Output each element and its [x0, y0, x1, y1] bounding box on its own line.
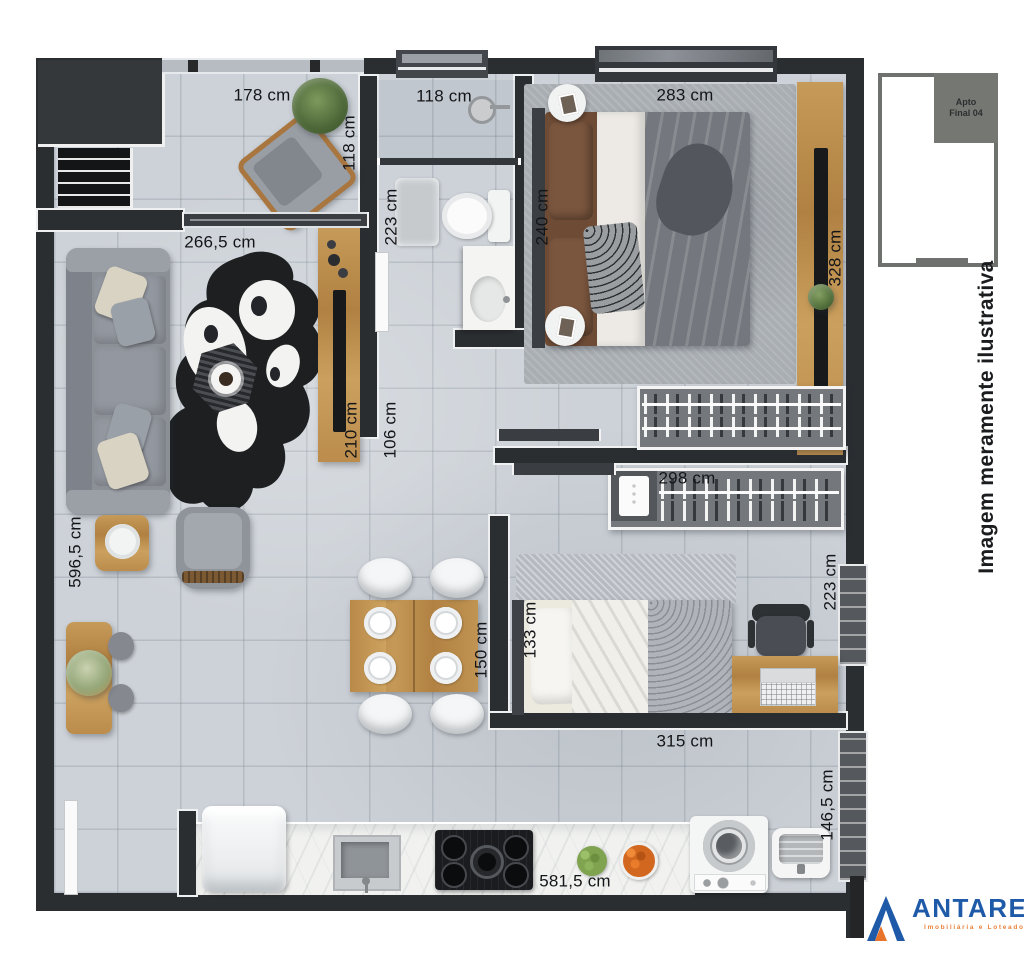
dim-bedroom1-depth: 240 cm	[534, 189, 551, 246]
dining-table	[350, 600, 478, 692]
wall-bottom	[36, 893, 864, 911]
shoe-rack	[58, 148, 133, 208]
faucet-stem	[365, 883, 368, 893]
wall-left	[36, 58, 54, 911]
entry-door	[64, 800, 78, 895]
cooktop	[435, 830, 533, 890]
floor-plan: 178 cm 118 cm 118 cm 223 cm 266,5 cm 283…	[0, 0, 1024, 960]
door-rail	[190, 219, 361, 221]
dim-bedroom1-side: 328 cm	[827, 230, 844, 287]
faucet-icon	[797, 864, 805, 874]
nightstand	[545, 306, 585, 346]
decor-object	[338, 268, 348, 278]
pillow-houndstooth	[583, 221, 646, 314]
dim-balcony-width: 178 cm	[234, 87, 291, 104]
brand-tagline: Imobiliária e Loteadora	[912, 924, 1024, 931]
tray	[105, 524, 140, 559]
chair-armrest	[748, 620, 755, 648]
toilet	[442, 190, 512, 242]
window-sill	[398, 67, 486, 70]
bathroom-window	[396, 50, 488, 78]
sofa	[66, 248, 170, 514]
brand-name: ANTARES	[912, 895, 1024, 921]
wall-right-upper	[846, 58, 864, 564]
office-chair	[748, 604, 814, 660]
armchair-cushion	[251, 135, 324, 208]
knit-blanket	[648, 600, 732, 713]
dim-bath-width: 118 cm	[416, 88, 472, 105]
shower-head-icon	[468, 96, 496, 124]
wall-bedroom2-left	[490, 516, 508, 728]
refrigerator	[202, 806, 286, 892]
shower-glass	[377, 158, 521, 165]
window-mullion	[188, 60, 198, 72]
wall-corner-bar	[850, 876, 864, 938]
side-table	[95, 515, 149, 571]
toilet-bowl	[442, 193, 492, 239]
coffee-beans	[219, 372, 233, 386]
wall-kitchen-stub	[179, 811, 196, 895]
bedroom1-wardrobe	[637, 386, 846, 450]
stool	[108, 684, 134, 712]
photo-frame	[558, 92, 579, 116]
shirt	[619, 476, 649, 516]
wall-bedroom2-bottom	[490, 713, 846, 728]
photo-frame	[556, 316, 576, 340]
dim-dining: 150 cm	[473, 622, 490, 679]
bedroom2-sliding-door	[512, 463, 616, 475]
keyplan-unit-line1: Apto	[956, 97, 977, 108]
keyplan-unit-line2: Final 04	[949, 108, 983, 119]
nightstand	[548, 84, 586, 122]
dim-bed2-bed: 133 cm	[522, 602, 539, 659]
dining-chair	[430, 558, 484, 598]
window-mullion	[310, 60, 320, 72]
console-plant	[66, 650, 112, 696]
dim-living-depth: 596,5 cm	[67, 516, 84, 588]
folded-shirt-icon	[611, 471, 657, 521]
wall-bath-bottom	[455, 330, 532, 347]
brand-logo: ANTARES Imobiliária e Loteadora	[866, 895, 1024, 941]
entry-hall-block	[38, 60, 165, 147]
dining-chair	[430, 694, 484, 734]
sofa-armrest	[66, 490, 170, 514]
kitchen-sink	[333, 835, 401, 891]
sink-basin	[341, 842, 389, 878]
dim-bed2-width: 315 cm	[657, 733, 714, 750]
window-blind	[402, 54, 482, 63]
dim-balcony-door: 266,5 cm	[184, 234, 256, 251]
burner-icon	[441, 862, 467, 888]
tub-basin	[779, 834, 823, 864]
antares-triangle-icon	[866, 895, 906, 941]
single-bed	[524, 600, 732, 713]
keyplan-inset: Apto Final 04	[878, 73, 998, 267]
sink-basin	[470, 276, 506, 322]
dim-balcony-depth: 118 cm	[341, 115, 358, 171]
wall-right-mid	[846, 662, 864, 731]
chair-seat	[756, 616, 806, 656]
fruit-bowl-orange	[620, 842, 658, 880]
dim-tv-panel: 210 cm	[343, 402, 360, 459]
bath-mat	[395, 178, 439, 246]
laptop-screen	[760, 668, 816, 683]
decor-object	[328, 254, 340, 266]
chair-armrest	[807, 620, 814, 648]
lounge-armchair	[176, 507, 250, 589]
washer-drum-inner	[716, 833, 742, 859]
pillow	[549, 122, 593, 220]
stool	[108, 632, 134, 660]
window-sill	[599, 68, 773, 72]
disclaimer-text: Imagem meramente ilustrativa	[975, 260, 999, 574]
wall-entry	[38, 210, 183, 230]
bathroom-door	[375, 252, 389, 332]
sofa-back	[66, 248, 92, 514]
faucet-icon	[503, 296, 510, 303]
dim-hall: 298 cm	[659, 470, 716, 487]
dim-bed2-depth: 223 cm	[822, 554, 839, 611]
decor-object	[327, 240, 336, 249]
armchair-seat	[184, 513, 242, 569]
laptop-keyboard	[760, 682, 816, 706]
bedroom2-wardrobe	[608, 468, 844, 530]
dim-passage: 106 cm	[382, 402, 399, 459]
coffee-tray	[211, 364, 241, 394]
burner-icon	[503, 862, 529, 888]
dim-bedroom1-width: 283 cm	[657, 87, 714, 104]
washer-panel	[694, 874, 766, 891]
table-seam	[413, 600, 415, 692]
laptop-icon	[760, 668, 814, 704]
window-blind	[599, 50, 773, 62]
bedroom2-window	[838, 564, 868, 666]
burner-icon	[470, 845, 504, 879]
bedroom1-window	[595, 46, 777, 82]
bedroom2-rug	[516, 554, 736, 606]
burner-icon	[441, 835, 467, 861]
washing-machine	[690, 816, 768, 893]
bedroom1-plant	[808, 284, 834, 310]
balcony-sliding-door	[182, 212, 369, 228]
keyplan-notch	[916, 258, 968, 267]
keyplan-unit-highlight: Apto Final 04	[934, 73, 998, 143]
dining-chair	[358, 558, 412, 598]
shower-arm	[490, 105, 510, 109]
bedroom2-desk	[732, 656, 838, 713]
bedroom1-sliding-door	[497, 429, 601, 441]
dim-bath-depth: 223 cm	[383, 189, 400, 246]
wall-bedrooms-divider	[495, 448, 846, 463]
armchair-frame	[182, 571, 244, 583]
laundry-window	[838, 731, 868, 882]
bathroom-vanity	[463, 246, 515, 330]
dim-kitchen: 581,5 cm	[539, 873, 611, 890]
dim-laundry: 146,5 cm	[819, 769, 836, 841]
burner-icon	[503, 835, 529, 861]
dining-chair	[358, 694, 412, 734]
